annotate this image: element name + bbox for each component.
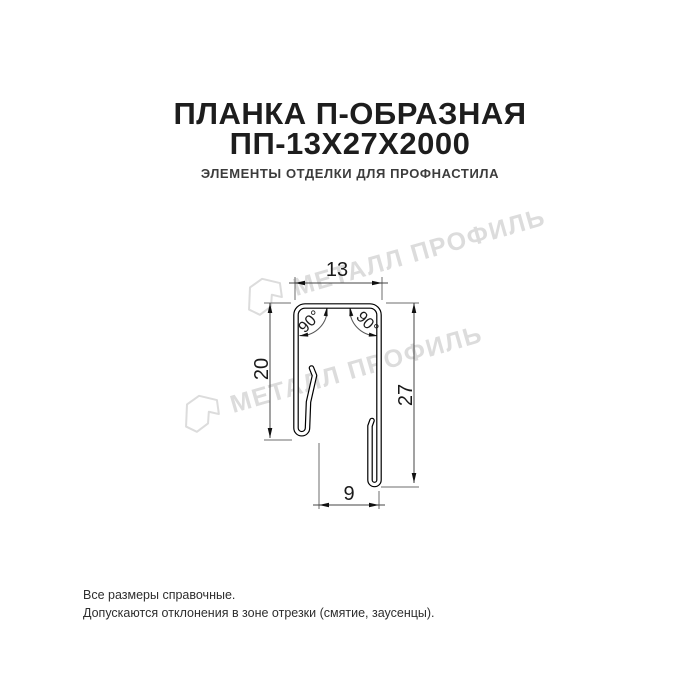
dimension-arrows [268,281,417,508]
dim-left-height-label: 20 [251,358,273,380]
product-drawing-page: ПЛАНКА П-ОБРАЗНАЯ ПП-13Х27Х2000 ЭЛЕМЕНТЫ… [0,0,700,700]
dimension-lines [270,283,414,505]
footer-note-line1: Все размеры справочные. [83,586,435,604]
angle-left-label: 90° [295,307,324,336]
dim-bottom-width-label: 9 [343,483,354,505]
page-subtitle: ЭЛЕМЕНТЫ ОТДЕЛКИ ДЛЯ ПРОФНАСТИЛА [0,166,700,181]
footer-notes: Все размеры справочные. Допускаются откл… [83,586,435,622]
dim-right-height-label: 27 [395,384,417,406]
page-title-line2: ПП-13Х27Х2000 [0,126,700,162]
dim-top-width-label: 13 [326,259,348,281]
footer-note-line2: Допускаются отклонения в зоне отрезки (с… [83,604,435,622]
